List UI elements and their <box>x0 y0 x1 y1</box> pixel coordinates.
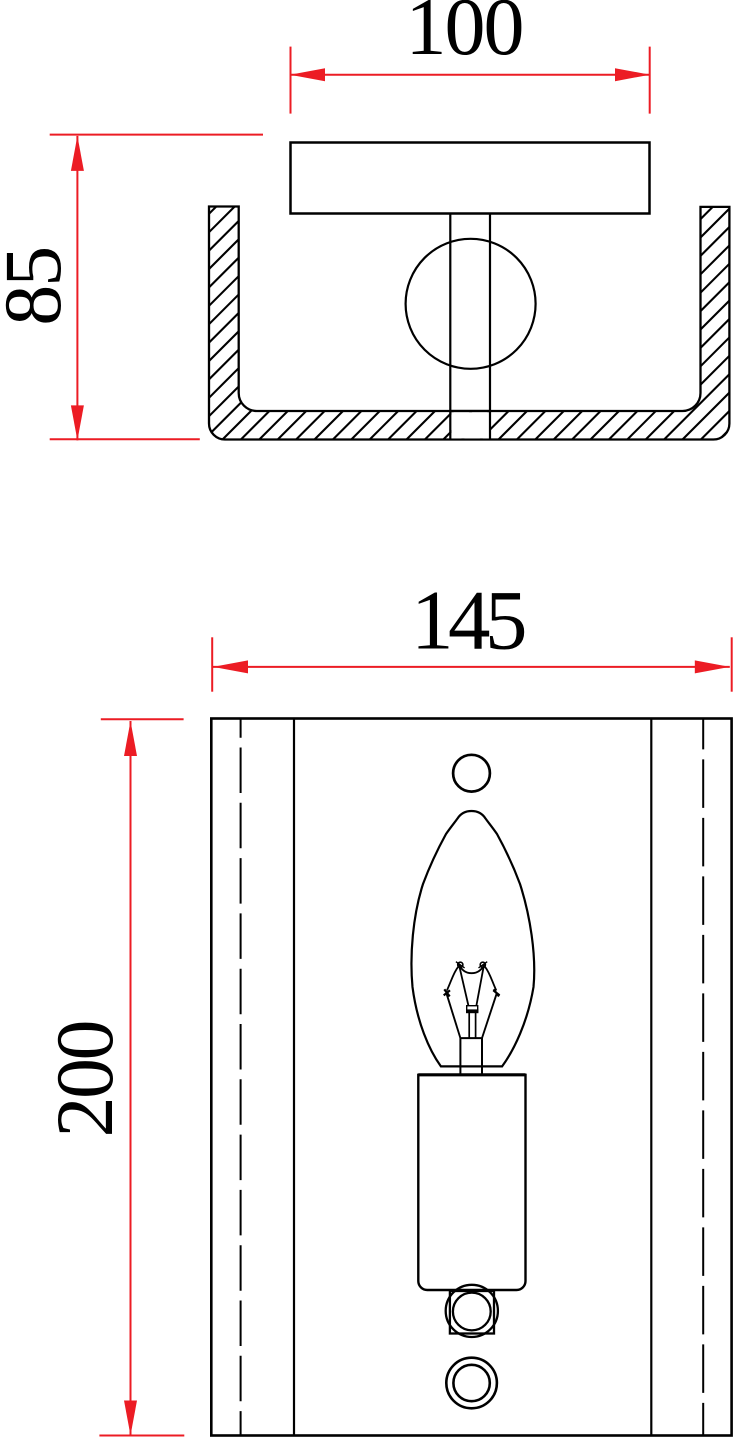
svg-text:85: 85 <box>0 248 78 326</box>
svg-text:145: 145 <box>411 574 525 668</box>
svg-text:100: 100 <box>406 0 523 72</box>
svg-text:200: 200 <box>39 1022 130 1138</box>
